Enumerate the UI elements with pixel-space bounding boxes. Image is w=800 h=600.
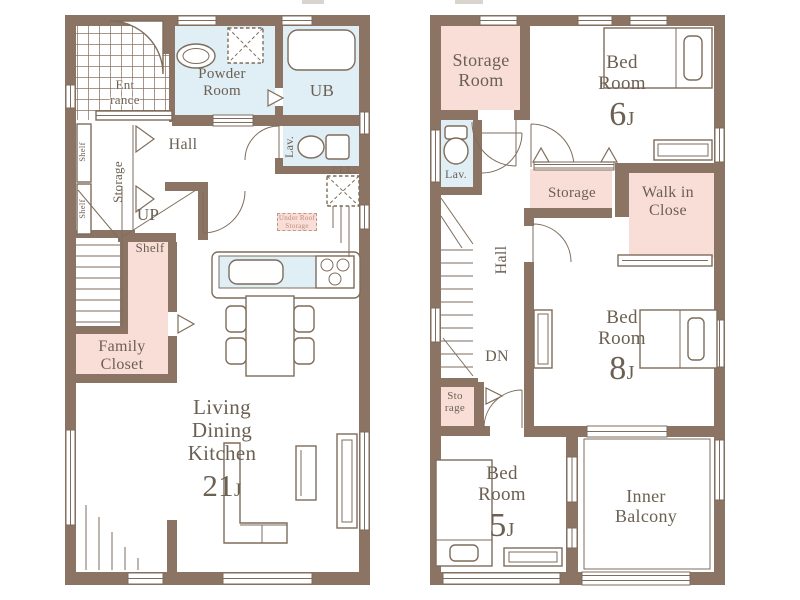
bedroom5-size-unit: J xyxy=(507,519,515,541)
bedroom8-size-unit: J xyxy=(627,362,635,384)
hall1-label: Hall xyxy=(153,136,213,154)
shelf-a-label: Shelf xyxy=(78,129,90,175)
bedroom5-label: Bed Room xyxy=(467,463,537,506)
lavatory1-door-arc xyxy=(245,126,279,160)
storage-closet-label: Storage xyxy=(532,185,612,202)
under-roof-storage-label: Under Roof Storage xyxy=(277,213,317,231)
bedroom6-label: Bed Room xyxy=(587,52,657,95)
ldk-size-label: 21J xyxy=(162,470,282,501)
ldk-size-value: 21 xyxy=(202,468,234,503)
walk-in-closet-label: Walk in Close xyxy=(637,184,699,220)
bedroom5-size-value: 5 xyxy=(489,507,506,544)
floorplan-page: Ent rance Powder Room UB Lav. Hall Stora… xyxy=(0,0,800,600)
powder-room-label: Powder Room xyxy=(187,66,257,100)
fridge-space-icon xyxy=(327,166,359,257)
shelf-b-label: Shelf xyxy=(78,186,90,232)
toilet2-icon xyxy=(444,126,468,164)
tv-stand-icon xyxy=(296,434,357,528)
inner-balcony-label: Inner Balcony xyxy=(601,486,691,526)
bedroom8-size-value: 8 xyxy=(609,350,626,387)
hall2-label: Hall xyxy=(493,230,511,290)
bookshelf8-icon xyxy=(534,310,552,368)
ldk-door-arc xyxy=(203,191,245,233)
bedroom8-label: Bed Room xyxy=(587,307,657,350)
storage-room-label: Storage Room xyxy=(438,50,524,90)
dresser6-icon xyxy=(654,140,712,160)
ldk-size-unit: J xyxy=(234,480,242,501)
washer-pan-icon xyxy=(228,28,263,63)
ldk-label: Living Dining Kitchen xyxy=(177,396,267,465)
family-closet-door-icon xyxy=(178,315,194,333)
stairs-up-label: UP xyxy=(126,205,170,224)
powder-sliding-door xyxy=(213,115,253,126)
kitchen-counter-icon xyxy=(212,252,360,298)
crop-marks xyxy=(302,0,483,4)
shelf-counter-label: Shelf xyxy=(126,241,174,256)
bedroom8-size-label: 8J xyxy=(587,352,657,386)
closet-front-icon xyxy=(533,148,617,170)
bedroom6-size-value: 6 xyxy=(609,96,626,133)
lavatory1-label: Lav. xyxy=(283,127,299,167)
stairs-down-icon xyxy=(441,198,473,376)
family-closet-label: Family Closet xyxy=(87,338,157,374)
lavatory2-label: Lav. xyxy=(436,168,476,181)
storage1-label: Storage xyxy=(111,152,129,212)
stairs-down-label: DN xyxy=(475,348,519,366)
dining-table-icon xyxy=(226,296,314,376)
bedroom8-door-arc xyxy=(533,224,571,262)
bedroom5-size-label: 5J xyxy=(467,509,537,543)
bedroom6-size-label: 6J xyxy=(587,98,657,132)
hanger-rail-icon xyxy=(618,255,712,266)
entrance-label: Ent rance xyxy=(99,78,151,107)
bedroom6-size-unit: J xyxy=(627,108,635,130)
sink-icon xyxy=(177,44,215,68)
storage-small-label: Sto rage xyxy=(438,390,472,415)
dresser5-icon xyxy=(504,548,562,566)
unit-bath-label: UB xyxy=(300,81,344,100)
louver-icon xyxy=(86,505,138,570)
bathtub-icon xyxy=(288,30,355,70)
bath-door-icon xyxy=(268,90,283,106)
